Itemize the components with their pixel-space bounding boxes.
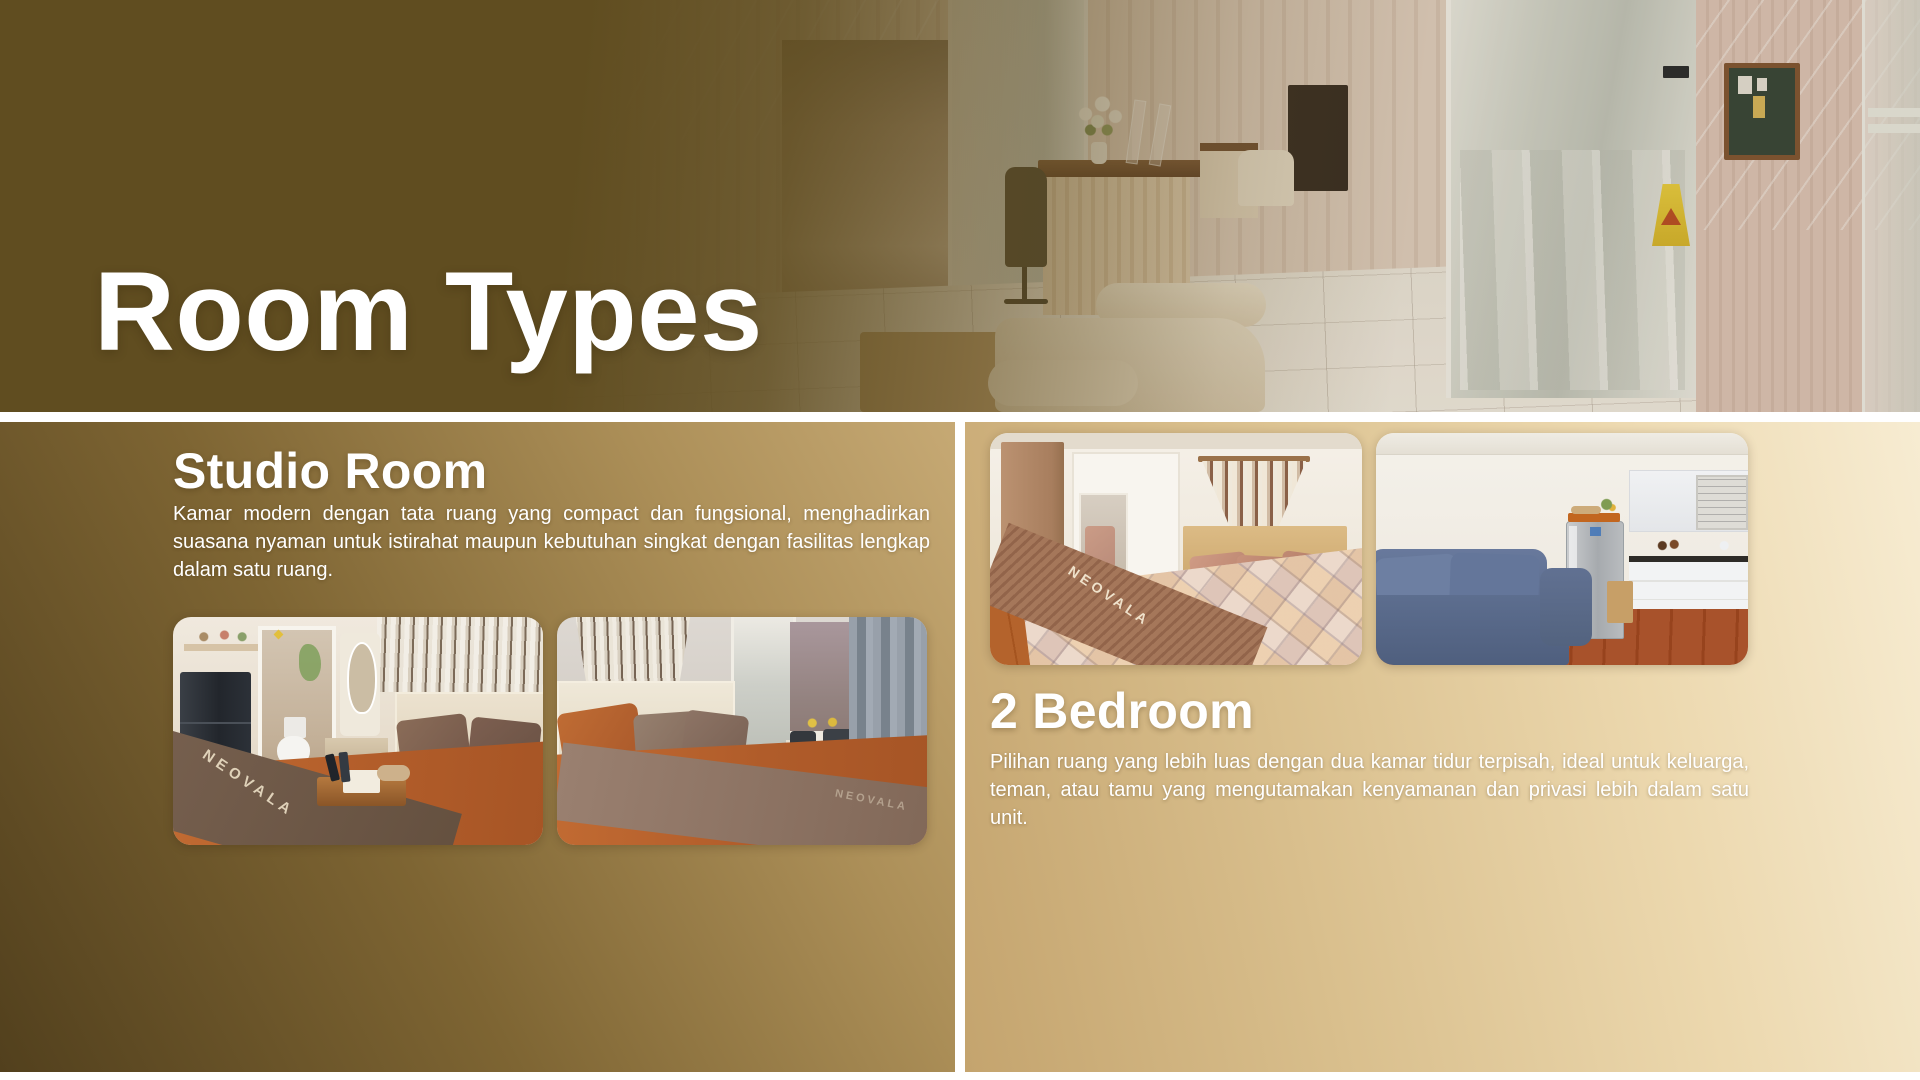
studio-photo-2: NEOVALA — [557, 617, 927, 845]
fridge-door-line — [180, 722, 250, 724]
studio-photo-row: NEOVALA — [173, 617, 927, 845]
2-bedroom-heading: 2 Bedroom — [990, 684, 1254, 739]
2-bedroom-photo-2 — [1376, 433, 1748, 665]
mirror-oval — [347, 642, 377, 714]
fridge-top-decor — [1571, 506, 1601, 514]
framed-picture — [1696, 475, 1748, 530]
sofa-armrest — [1540, 568, 1592, 647]
fridge-highlight — [1569, 526, 1576, 572]
section-studio-room: Studio Room Kamar modern dengan tata rua… — [0, 422, 955, 1072]
shelf-decor — [192, 626, 251, 644]
section-2-bedroom: NEOVALA — [965, 422, 1920, 1072]
fridge-top-tray — [1568, 513, 1620, 522]
ceiling — [1376, 433, 1748, 455]
studio-room-heading: Studio Room — [173, 444, 487, 499]
2-bedroom-description: Pilihan ruang yang lebih luas dengan dua… — [990, 748, 1749, 832]
wall-shelf — [184, 644, 258, 651]
page-title: Room Types — [94, 256, 763, 368]
toilet-tank — [284, 717, 306, 738]
wall-art — [377, 617, 544, 692]
slide: Room Types Studio Room Kamar modern deng… — [0, 0, 1920, 1080]
2-bedroom-photo-1: NEOVALA — [990, 433, 1362, 665]
towel-roll — [377, 765, 410, 781]
fridge-label — [1590, 527, 1601, 536]
kitchen-backsplash — [1629, 530, 1748, 556]
bathroom-plant — [299, 644, 321, 680]
side-cabinet — [1607, 581, 1633, 623]
hero-banner: Room Types — [0, 0, 1920, 412]
brand-watermark: NEOVALA — [834, 788, 909, 814]
studio-room-description: Kamar modern dengan tata ruang yang comp… — [173, 500, 930, 584]
studio-photo-1: NEOVALA — [173, 617, 543, 845]
plant-decor — [1599, 498, 1618, 514]
2-bedroom-photo-row: NEOVALA — [990, 433, 1748, 665]
